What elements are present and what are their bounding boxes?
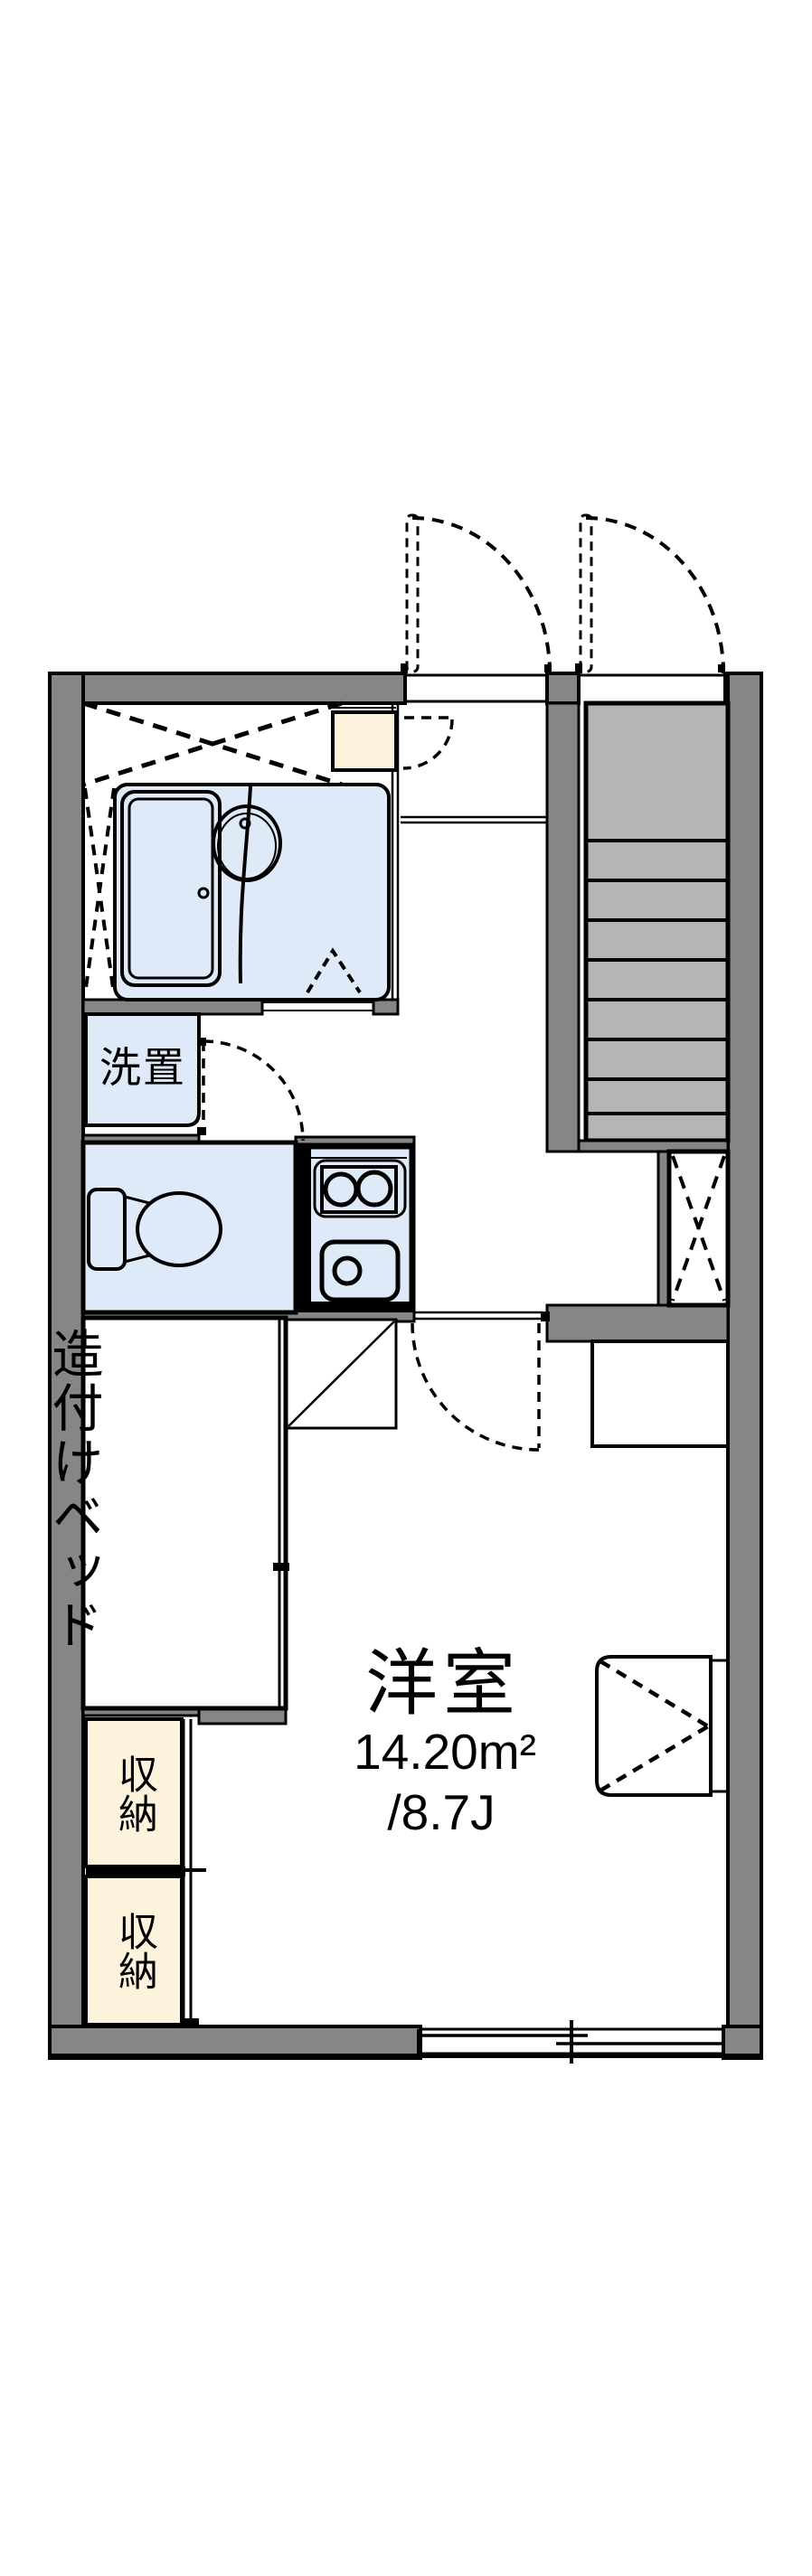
main-room-name: 洋室	[365, 1625, 521, 1730]
main-room-door-threshold	[414, 1312, 543, 1319]
built-in-bed-label-line1: 造付けベッド	[40, 1327, 107, 1706]
entry-cabinet	[333, 708, 396, 770]
storage-lower-label: 収納	[105, 1911, 163, 1990]
kitchen-bottom-band	[298, 1302, 414, 1312]
toilet-room	[83, 1142, 296, 1312]
washer-space-label: 洗置	[99, 1035, 186, 1095]
unit-bath	[115, 785, 389, 1000]
bathroom-ceiling-x	[83, 703, 342, 785]
pipe-space	[669, 1152, 728, 1305]
entry-door-right	[581, 515, 723, 673]
entry-door-left	[407, 515, 550, 673]
air-conditioner	[597, 1657, 728, 1795]
main-room-door	[412, 1323, 539, 1450]
floorplan-drawing	[0, 0, 812, 2576]
floorplan: 洗置 造付けベッド （下部収納） 収納 収納 洋室 14.20m² /8.7J	[0, 0, 812, 2576]
main-room-area-sqm: 14.20m²	[354, 1723, 536, 1781]
staircase	[586, 703, 728, 1141]
refrigerator-space	[287, 1320, 396, 1428]
entry-step-line	[401, 817, 547, 823]
main-room-area-tatami: /8.7J	[387, 1783, 495, 1841]
built-in-bed-label: 造付けベッド （下部収納）	[0, 1327, 241, 1706]
toilet-door	[203, 1041, 303, 1141]
bath-door-threshold	[262, 1002, 373, 1011]
counter	[592, 1341, 728, 1446]
entry-cabinet-door	[403, 718, 452, 768]
bathroom-side-x	[85, 788, 114, 994]
storage-upper-label: 収納	[105, 1753, 163, 1833]
kitchen	[300, 1146, 412, 1309]
closet-bottom-notch	[184, 2018, 199, 2026]
